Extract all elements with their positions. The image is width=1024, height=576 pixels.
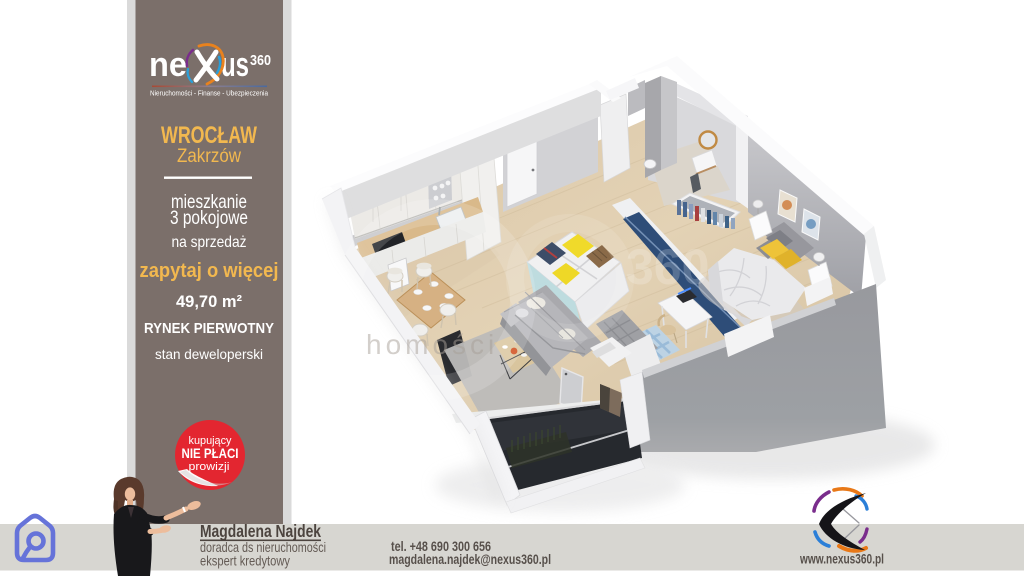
svg-text:Magdalena Najdek: Magdalena Najdek (200, 521, 321, 541)
svg-text:stan deweloperski: stan deweloperski (155, 346, 263, 362)
svg-text:www.nexus360.pl: www.nexus360.pl (799, 552, 884, 567)
svg-text:ne: ne (149, 46, 187, 84)
svg-text:magdalena.najdek@nexus360.pl: magdalena.najdek@nexus360.pl (389, 552, 551, 567)
svg-text:ekspert kredytowy: ekspert kredytowy (200, 553, 290, 569)
svg-text:RYNEK PIERWOTNY: RYNEK PIERWOTNY (144, 320, 274, 337)
svg-text:360: 360 (250, 53, 271, 69)
svg-text:49,70 m²: 49,70 m² (176, 293, 243, 311)
svg-text:na sprzedaż: na sprzedaż (172, 234, 247, 251)
svg-text:WROCŁAW: WROCŁAW (161, 122, 257, 149)
svg-text:360: 360 (626, 239, 709, 295)
svg-text:homości: homości (366, 329, 498, 360)
svg-text:prowizji: prowizji (189, 461, 230, 473)
svg-text:us: us (221, 46, 249, 84)
svg-text:zapytaj o więcej: zapytaj o więcej (140, 260, 279, 282)
svg-text:Nieruchomości - Finanse - Ubez: Nieruchomości - Finanse - Ubezpieczenia (150, 89, 268, 98)
svg-text:3 pokojowe: 3 pokojowe (170, 207, 248, 229)
svg-text:NIE PŁACI: NIE PŁACI (182, 446, 239, 461)
svg-text:Zakrzów: Zakrzów (177, 146, 241, 167)
